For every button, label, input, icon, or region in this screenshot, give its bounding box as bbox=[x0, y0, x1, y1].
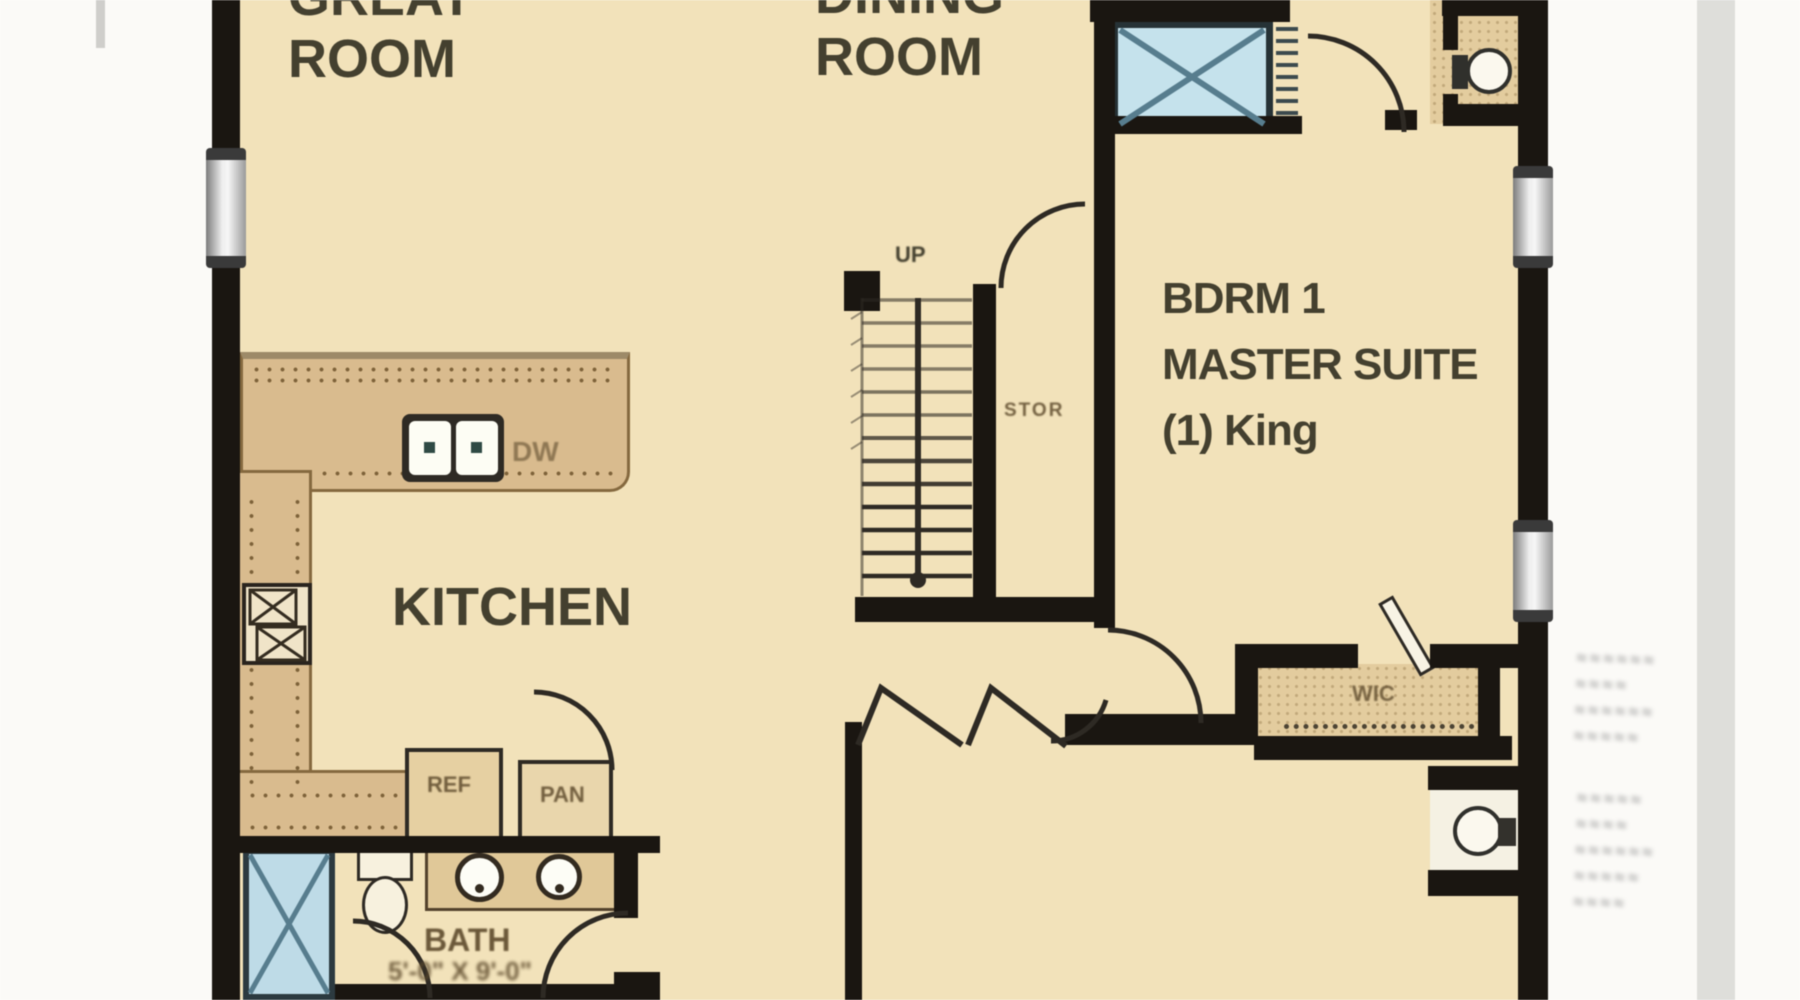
dishwasher-label: DW bbox=[512, 436, 559, 468]
room-label-master-suite: BDRM 1 MASTER SUITE (1) King bbox=[1162, 266, 1502, 464]
master-suite-line2: MASTER SUITE bbox=[1162, 332, 1502, 398]
master-suite-line1: BDRM 1 bbox=[1162, 266, 1502, 332]
bifold-door bbox=[858, 688, 962, 745]
range-burner-x bbox=[250, 590, 305, 660]
plan-linework bbox=[0, 0, 1800, 1000]
storage-label: STOR bbox=[1004, 400, 1064, 422]
door-swing-arc bbox=[1108, 630, 1201, 723]
door-swing-arc bbox=[1051, 700, 1106, 741]
bath-dimension-label: 5'-0" X 9'-0" bbox=[388, 956, 532, 987]
stair-up-label: UP bbox=[895, 242, 926, 268]
shower-x-mark bbox=[250, 30, 1264, 993]
door-swing-arc bbox=[543, 913, 628, 998]
bath-label: BATH bbox=[424, 922, 511, 959]
door-swing-arc bbox=[1001, 204, 1085, 288]
master-suite-line3: (1) King bbox=[1162, 398, 1502, 464]
bifold-door bbox=[968, 688, 1066, 746]
staircase bbox=[851, 298, 972, 596]
room-label-kitchen: KITCHEN bbox=[392, 576, 692, 638]
floor-plan-image: GREAT ROOM DINING ROOM KITCHEN BDRM 1 MA… bbox=[0, 0, 1800, 1000]
door-swing-arc bbox=[534, 692, 612, 770]
ref-label: REF bbox=[427, 772, 471, 798]
room-label-dining-room: DINING ROOM bbox=[815, 0, 1095, 88]
door-swing-arc bbox=[1308, 36, 1404, 132]
illegible-margin-text: ≈≈≈≈≈ ≈≈≈≈ ≈≈≈≈≈≈ ≈≈≈≈≈ ≈≈≈≈ bbox=[1573, 786, 1702, 920]
wic-label: WIC bbox=[1352, 681, 1395, 707]
pan-label: PAN bbox=[540, 782, 585, 808]
room-label-great-room: GREAT ROOM bbox=[288, 0, 538, 90]
illegible-margin-text: ≈≈≈≈≈≈ ≈≈≈≈ ≈≈≈≈≈≈ ≈≈≈≈≈ bbox=[1573, 646, 1702, 754]
